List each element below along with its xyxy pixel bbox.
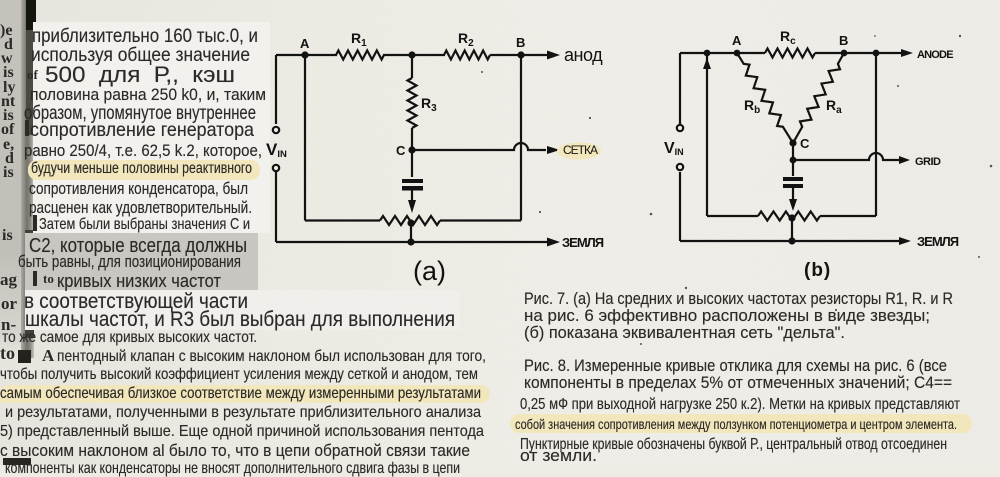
svg-text:(a): (a) (413, 256, 446, 286)
svg-text:анод: анод (564, 45, 603, 65)
svg-text:СЕТКА: СЕТКА (563, 143, 598, 157)
svg-text:B: B (839, 33, 848, 48)
svg-text:(b): (b) (804, 260, 831, 281)
svg-text:C: C (396, 143, 406, 158)
svg-text:R1: R1 (351, 30, 367, 49)
svg-text:ЗЕМЛЯ: ЗЕМЛЯ (917, 234, 959, 249)
svg-text:Rb: Rb (744, 97, 760, 116)
svg-text:GRID: GRID (915, 156, 941, 168)
svg-text:A: A (300, 36, 310, 51)
svg-text:ЗЕМЛЯ: ЗЕМЛЯ (562, 235, 604, 250)
svg-text:Ra: Ra (826, 97, 842, 116)
svg-text:B: B (516, 35, 525, 50)
svg-text:R2: R2 (458, 30, 474, 49)
svg-text:C: C (800, 136, 810, 151)
svg-text:Rc: Rc (780, 28, 796, 47)
svg-text:VIN: VIN (664, 140, 684, 157)
svg-text:VIN: VIN (266, 140, 287, 160)
svg-text:R3: R3 (421, 95, 437, 114)
svg-text:A: A (732, 33, 742, 48)
svg-text:ANODE: ANODE (917, 49, 953, 61)
